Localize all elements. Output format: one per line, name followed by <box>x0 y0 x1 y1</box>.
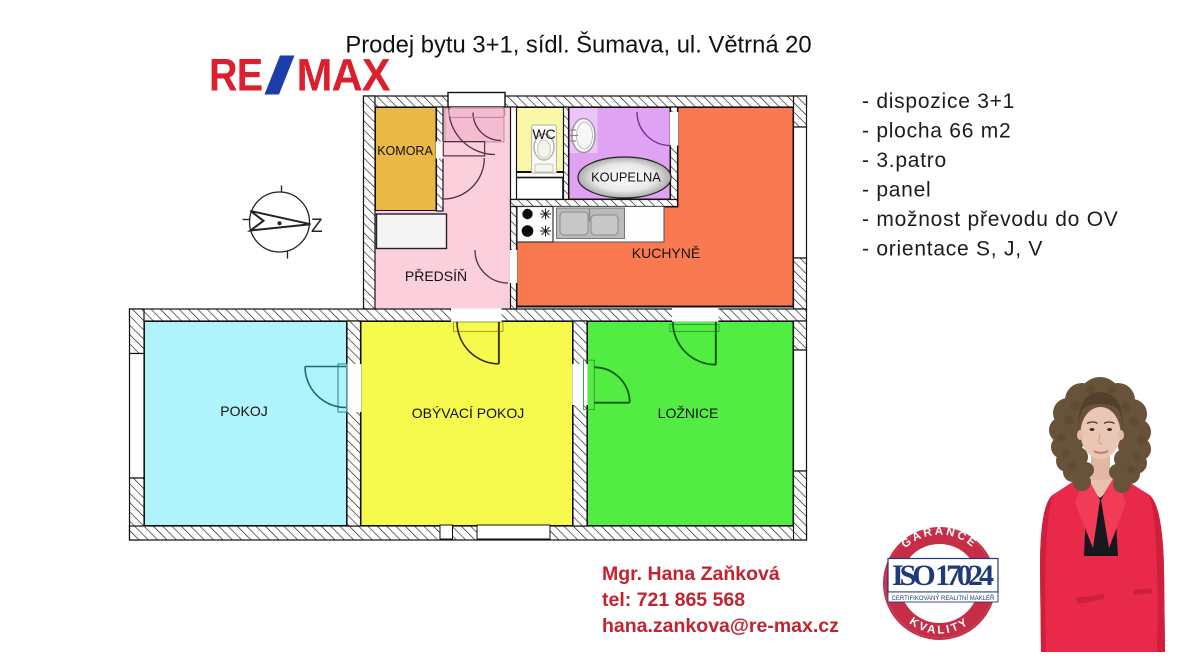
svg-text:Prodej bytu 3+1, sídl. Šumava,: Prodej bytu 3+1, sídl. Šumava, ul. Větrn… <box>345 31 811 59</box>
svg-text:- 3.patro: - 3.patro <box>862 149 947 172</box>
svg-text:OBÝVACÍ POKOJ: OBÝVACÍ POKOJ <box>412 405 525 421</box>
svg-text:LOŽNICE: LOŽNICE <box>658 405 719 421</box>
svg-text:- dispozice 3+1: - dispozice 3+1 <box>862 90 1015 113</box>
svg-text:hana.zankova@re-max.cz: hana.zankova@re-max.cz <box>602 615 839 637</box>
svg-text:KUCHYNĚ: KUCHYNĚ <box>632 245 700 261</box>
svg-text:KOUPELNA: KOUPELNA <box>591 170 661 185</box>
svg-text:MAX: MAX <box>297 51 392 101</box>
svg-text:PŘEDSÍŇ: PŘEDSÍŇ <box>405 268 467 284</box>
svg-text:POKOJ: POKOJ <box>220 403 267 419</box>
svg-text:- panel: - panel <box>862 179 931 202</box>
svg-text:Mgr. Hana Zaňková: Mgr. Hana Zaňková <box>602 563 780 585</box>
svg-text:ISO 17024: ISO 17024 <box>892 559 994 592</box>
svg-text:tel: 721 865 568: tel: 721 865 568 <box>602 589 745 611</box>
svg-text:- orientace S, J, V: - orientace S, J, V <box>862 238 1043 261</box>
svg-text:WC: WC <box>532 126 555 142</box>
svg-text:Z: Z <box>311 216 323 237</box>
svg-text:- možnost převodu do OV: - možnost převodu do OV <box>862 208 1119 231</box>
svg-text:- plocha 66 m2: - plocha 66 m2 <box>862 120 1011 143</box>
svg-text:RE: RE <box>209 50 262 100</box>
svg-text:KOMORA: KOMORA <box>377 144 433 158</box>
svg-text:CERTIFIKOVANÝ REALITNÍ MAKLÉŘ: CERTIFIKOVANÝ REALITNÍ MAKLÉŘ <box>892 594 995 602</box>
